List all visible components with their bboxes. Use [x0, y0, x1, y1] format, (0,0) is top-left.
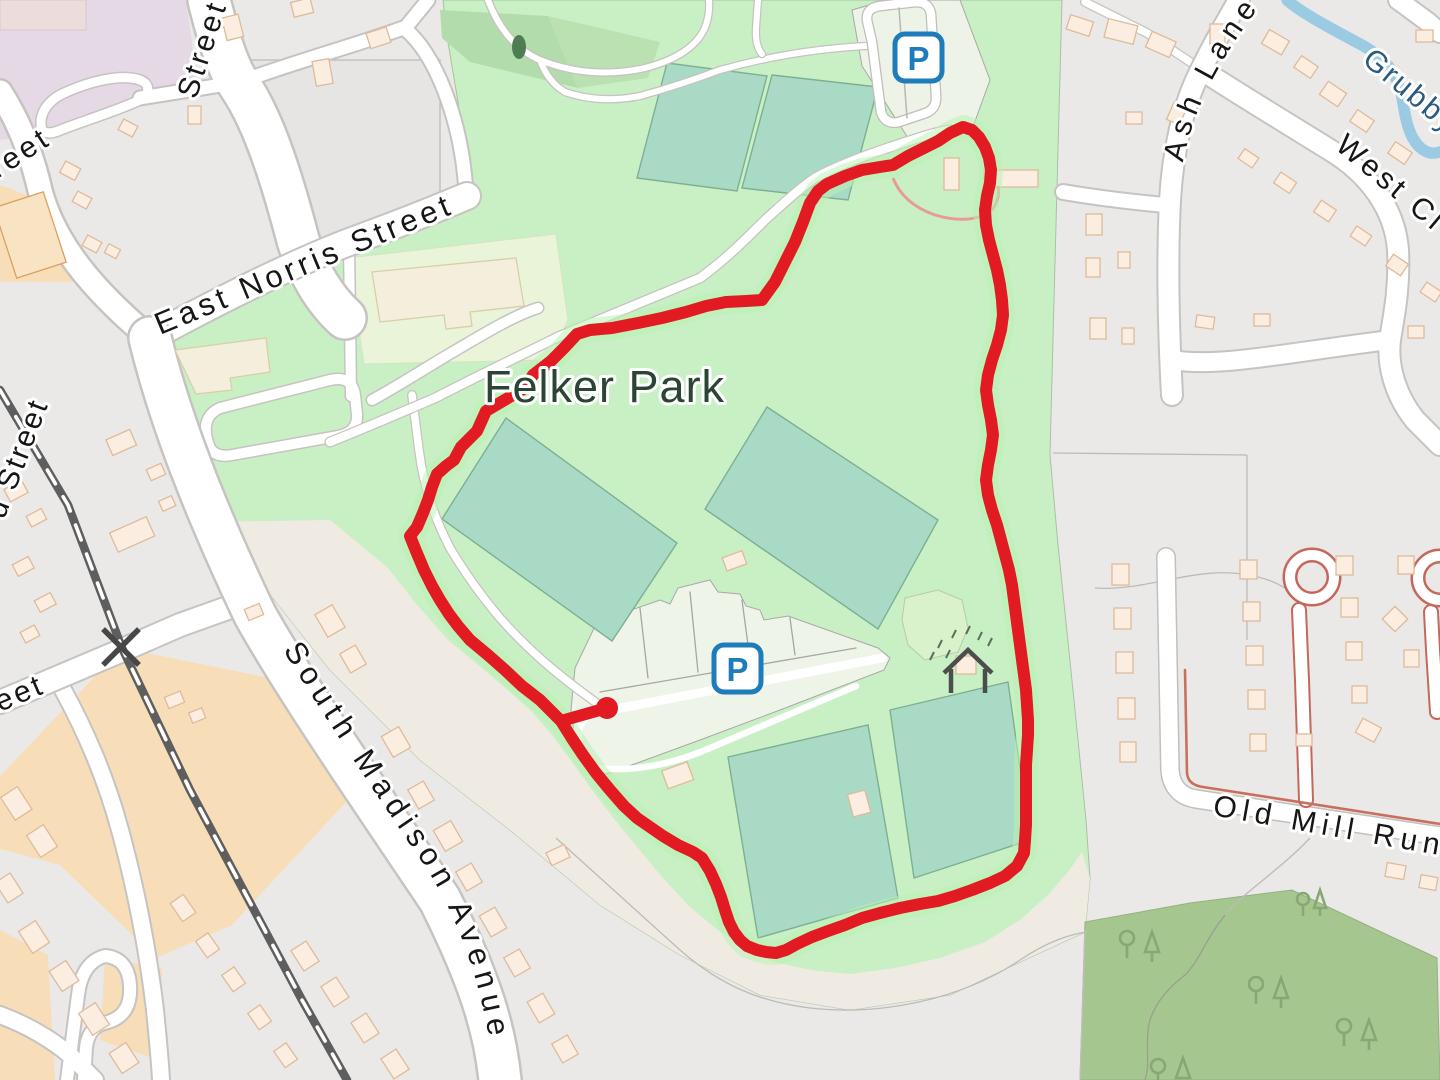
svg-text:P: P — [907, 40, 929, 77]
svg-text:Felker Park: Felker Park — [484, 361, 725, 412]
svg-text:P: P — [726, 651, 748, 688]
